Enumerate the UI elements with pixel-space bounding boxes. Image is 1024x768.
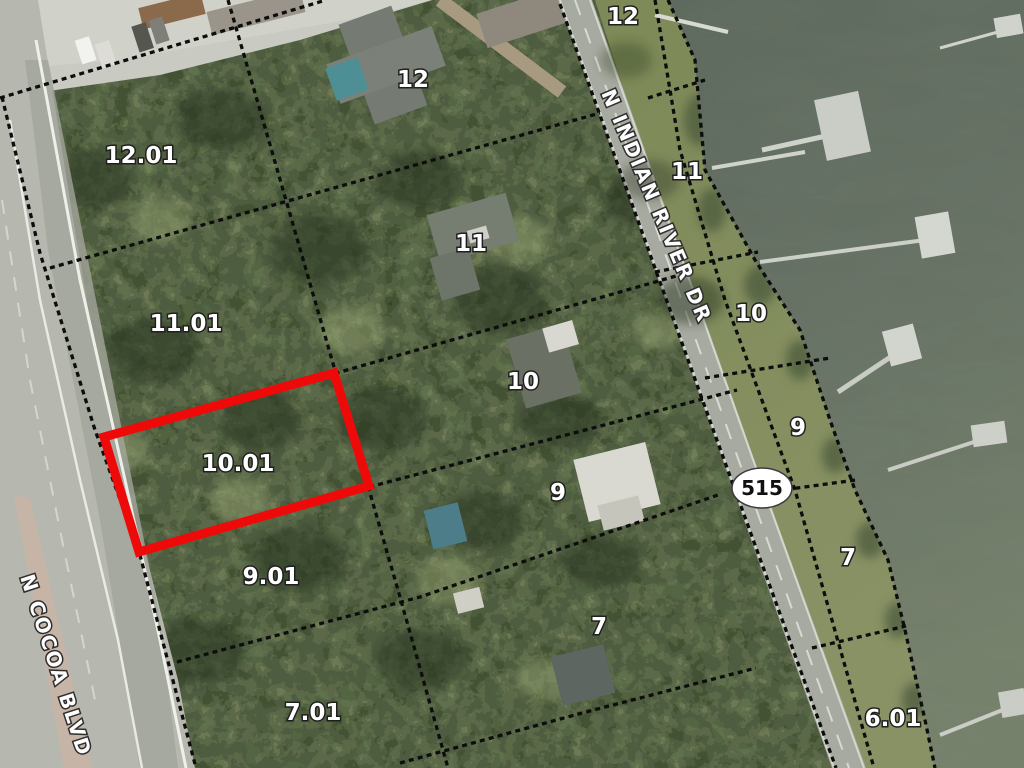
route-shield: 515 — [732, 468, 792, 508]
parcel-label: 11 — [455, 231, 487, 257]
parcel-label: 11 — [671, 159, 703, 185]
parcel-label: 7 — [840, 545, 856, 571]
parcel-label: 10 — [507, 369, 539, 395]
parcel-label: 7 — [591, 614, 607, 640]
parcel-label: 12 — [607, 4, 639, 30]
parcel-label: 9 — [790, 415, 806, 441]
parcel-label: 7.01 — [285, 700, 342, 726]
parcel-label: 10.01 — [202, 451, 275, 477]
parcel-label: 9 — [550, 480, 566, 506]
parcel-label: 6.01 — [865, 706, 922, 732]
parcel-label: 11.01 — [150, 311, 223, 337]
aerial-parcel-map[interactable]: N INDIAN RIVER DRN COCOA BLVD 12.0111.01… — [0, 0, 1024, 768]
parcel-label: 10 — [735, 301, 767, 327]
map-viewport[interactable]: N INDIAN RIVER DRN COCOA BLVD 12.0111.01… — [0, 0, 1024, 768]
parcel-label: 12 — [397, 67, 429, 93]
route-shield-label: 515 — [741, 476, 783, 500]
parcel-label: 9.01 — [243, 564, 300, 590]
parcel-label: 12.01 — [105, 143, 178, 169]
